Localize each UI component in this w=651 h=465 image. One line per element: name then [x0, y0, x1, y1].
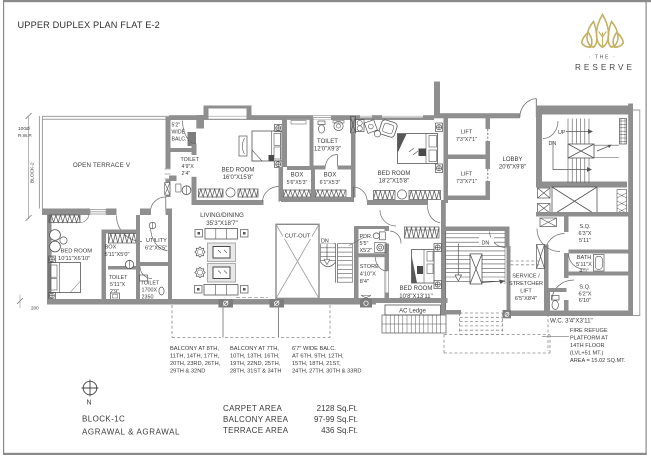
svg-text:DN: DN	[482, 241, 490, 247]
svg-text:TOILET: TOILET	[109, 275, 128, 281]
svg-text:BOX: BOX	[324, 173, 337, 179]
svg-text:TOILET: TOILET	[317, 139, 338, 145]
svg-text:OPEN TERRACE V: OPEN TERRACE V	[73, 162, 131, 169]
svg-text:UTILITY: UTILITY	[146, 238, 167, 244]
svg-text:BATH: BATH	[577, 255, 592, 261]
svg-text:16'0"X15'8": 16'0"X15'8"	[223, 175, 254, 181]
svg-text:STRETCHER: STRETCHER	[509, 281, 543, 287]
svg-text:5'11": 5'11"	[579, 238, 591, 244]
svg-text:CARPET AREA: CARPET AREA	[223, 404, 283, 413]
svg-text:11TH, 14TH, 17TH,: 11TH, 14TH, 17TH,	[170, 354, 220, 360]
svg-text:PDR.: PDR.	[360, 234, 373, 240]
svg-text:S.Q.: S.Q.	[579, 224, 591, 230]
svg-text:LIFT: LIFT	[461, 130, 473, 136]
svg-text:6'3"X: 6'3"X	[578, 231, 591, 237]
svg-text:5'6"X5'3": 5'6"X5'3"	[287, 180, 308, 186]
svg-text:LIFT: LIFT	[520, 289, 532, 295]
svg-text:BED ROOM: BED ROOM	[222, 168, 255, 174]
svg-text:LOBBY: LOBBY	[502, 157, 522, 163]
svg-text:· THE ·: · THE ·	[589, 55, 617, 61]
svg-text:PLATFORM AT: PLATFORM AT	[570, 336, 609, 342]
svg-text:97-99 Sq.Ft.: 97-99 Sq.Ft.	[314, 415, 358, 424]
svg-text:4'10"X: 4'10"X	[360, 272, 376, 278]
svg-text:15TH, 18TH, 21ST,: 15TH, 18TH, 21ST,	[292, 361, 341, 367]
svg-text:BALCONY AREA: BALCONY AREA	[223, 415, 289, 424]
svg-text:LIVING/DINING: LIVING/DINING	[200, 212, 244, 219]
svg-text:5'11"X: 5'11"X	[110, 282, 126, 288]
svg-text:BED ROOM: BED ROOM	[378, 171, 411, 177]
svg-text:DN: DN	[321, 239, 329, 245]
svg-text:1700X: 1700X	[142, 288, 158, 294]
svg-text:20'6"X9'8": 20'6"X9'8"	[499, 165, 526, 171]
svg-text:5'11"X: 5'11"X	[576, 262, 592, 268]
svg-text:STORE: STORE	[360, 264, 379, 270]
svg-text:BOX: BOX	[105, 245, 117, 251]
svg-text:LIFT: LIFT	[461, 172, 473, 178]
svg-text:CUT-OUT: CUT-OUT	[285, 233, 311, 239]
svg-text:AGRAWAL & AGRAWAL: AGRAWAL & AGRAWAL	[82, 428, 180, 437]
svg-text:7'3"X7'1": 7'3"X7'1"	[456, 179, 477, 185]
svg-text:12'0"X9'3": 12'0"X9'3"	[314, 147, 341, 153]
svg-text:BLOCK-1C: BLOCK-1C	[82, 415, 125, 424]
svg-text:6'2"X: 6'2"X	[578, 291, 591, 297]
svg-text:2'9": 2'9"	[110, 289, 119, 295]
svg-text:2128 Sq.Ft.: 2128 Sq.Ft.	[317, 404, 358, 413]
svg-text:5'2": 5'2"	[172, 123, 181, 129]
svg-text:35'3"X18'7": 35'3"X18'7"	[206, 220, 238, 227]
svg-text:AC Ledge: AC Ledge	[399, 309, 426, 315]
svg-text:4'9"X: 4'9"X	[182, 164, 195, 170]
svg-text:DN: DN	[549, 141, 557, 147]
svg-text:19TH, 22ND, 25TH,: 19TH, 22ND, 25TH,	[230, 361, 281, 367]
svg-text:AT 6TH, 9TH, 12TH,: AT 6TH, 9TH, 12TH,	[292, 354, 344, 360]
svg-text:UP: UP	[558, 130, 566, 136]
svg-text:FIRE REFUGE: FIRE REFUGE	[570, 328, 608, 334]
svg-text:29TH & 32ND: 29TH & 32ND	[170, 369, 205, 375]
svg-text:18'2"X15'8": 18'2"X15'8"	[379, 179, 410, 185]
svg-text:TERRACE AREA: TERRACE AREA	[223, 426, 289, 435]
svg-text:10'11"X6'10": 10'11"X6'10"	[58, 256, 90, 262]
svg-text:BED ROOM: BED ROOM	[400, 286, 433, 292]
svg-text:28TH, 31ST & 34TH: 28TH, 31ST & 34TH	[230, 369, 281, 375]
svg-text:BALCONY AT 8TH,: BALCONY AT 8TH,	[170, 346, 219, 352]
svg-text:SERVICE /: SERVICE /	[512, 274, 540, 280]
svg-text:BALCONY AT 7TH,: BALCONY AT 7TH,	[230, 346, 279, 352]
svg-text:TOILET: TOILET	[181, 157, 200, 163]
svg-text:24TH, 27TH, 30TH & 33RD: 24TH, 27TH, 30TH & 33RD	[292, 369, 362, 375]
svg-text:10TH, 13TH, 16TH,: 10TH, 13TH, 16TH,	[230, 354, 280, 360]
svg-text:AREA = 15.02 SQ.MT.: AREA = 15.02 SQ.MT.	[570, 358, 626, 364]
svg-text:6'5"X8'4": 6'5"X8'4"	[515, 296, 537, 302]
svg-text:BED ROOM: BED ROOM	[61, 249, 93, 255]
svg-text:X5'2": X5'2"	[360, 248, 373, 254]
svg-text:20TH, 23RD, 26TH,: 20TH, 23RD, 26TH,	[170, 361, 221, 367]
svg-text:6'2"X5'5": 6'2"X5'5"	[145, 246, 167, 252]
svg-text:N: N	[87, 400, 92, 407]
svg-text:6'7" WIDE BALC.: 6'7" WIDE BALC.	[292, 346, 336, 352]
svg-text:WIDE: WIDE	[172, 130, 186, 136]
svg-text:R.W.P.: R.W.P.	[18, 133, 32, 139]
svg-text:BALC.: BALC.	[172, 137, 187, 143]
svg-text:6'10": 6'10"	[579, 298, 591, 304]
svg-text:200: 200	[31, 306, 39, 311]
svg-text:BOX: BOX	[291, 173, 304, 179]
svg-text:14TH FLOOR: 14TH FLOOR	[570, 343, 605, 349]
svg-text:5'5": 5'5"	[360, 241, 369, 247]
svg-text:8'4": 8'4"	[360, 279, 369, 285]
svg-text:(LVL+51 MT.): (LVL+51 MT.)	[570, 351, 603, 357]
svg-text:UPPER DUPLEX PLAN FLAT E-2: UPPER DUPLEX PLAN FLAT E-2	[18, 20, 160, 30]
svg-text:436 Sq.Ft.: 436 Sq.Ft.	[321, 426, 358, 435]
svg-text:S.Q.: S.Q.	[579, 285, 591, 291]
svg-text:100Ø: 100Ø	[18, 126, 30, 132]
svg-text:6'1"X5'3": 6'1"X5'3"	[320, 180, 341, 186]
svg-text:7'3"X7'1": 7'3"X7'1"	[456, 137, 477, 143]
svg-text:5'11"X5'0": 5'11"X5'0"	[105, 252, 130, 258]
svg-text:RESERVE: RESERVE	[575, 63, 635, 72]
svg-text:BLOCK-2: BLOCK-2	[30, 162, 36, 183]
svg-text:TOILET: TOILET	[141, 281, 160, 287]
svg-text:2'4": 2'4"	[182, 171, 191, 177]
svg-text:W.C. 3'4"X3'11": W.C. 3'4"X3'11"	[550, 318, 593, 325]
